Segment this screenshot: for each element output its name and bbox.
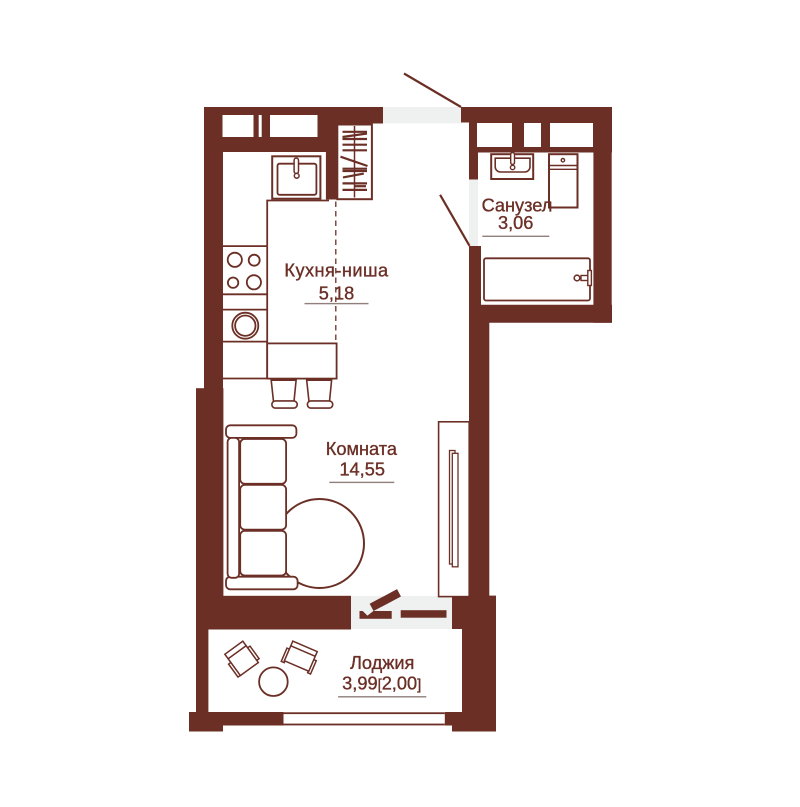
svg-text:5,18: 5,18: [319, 284, 354, 304]
svg-text:Кухня-ниша: Кухня-ниша: [284, 260, 389, 280]
svg-text:Комната: Комната: [326, 439, 398, 459]
svg-text:14,55: 14,55: [339, 460, 385, 480]
svg-text:3,06: 3,06: [498, 213, 533, 233]
svg-text:Лоджия: Лоджия: [350, 653, 414, 673]
svg-text:3,99[2,00]: 3,99[2,00]: [342, 674, 421, 694]
